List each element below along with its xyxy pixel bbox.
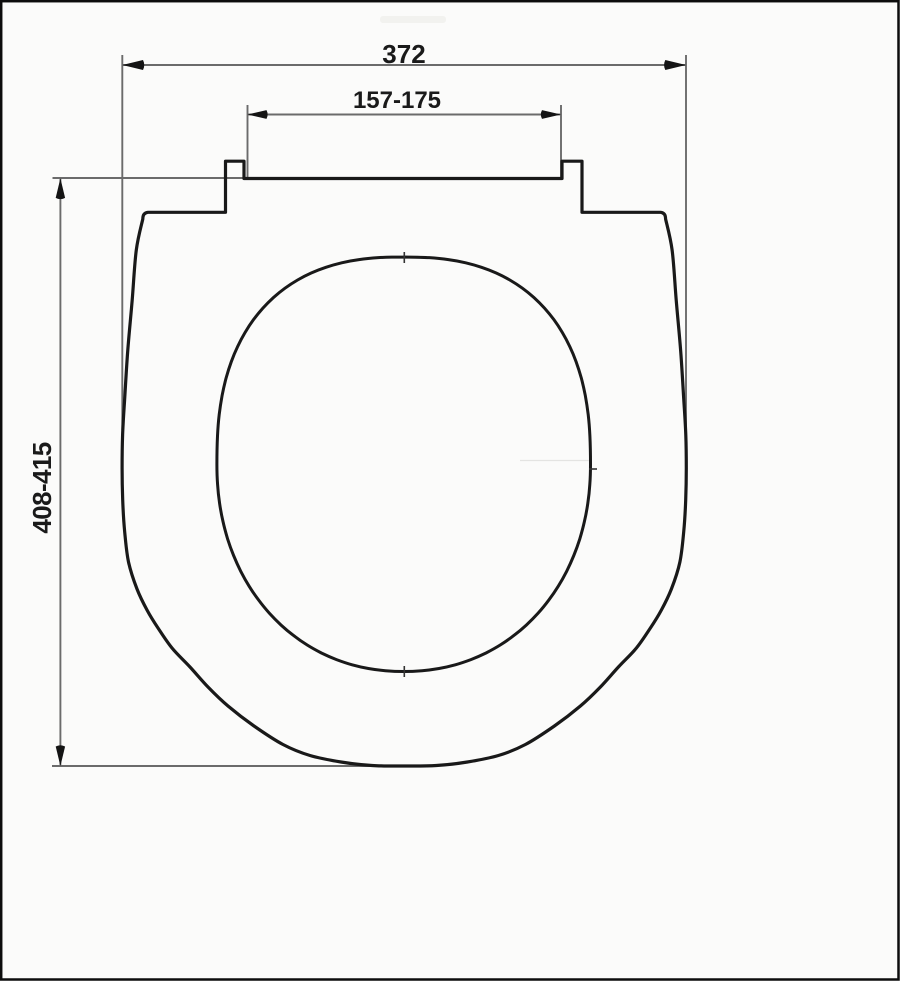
svg-text:408-415: 408-415 bbox=[27, 442, 57, 533]
svg-text:372: 372 bbox=[382, 39, 425, 69]
svg-text:157-175: 157-175 bbox=[353, 87, 441, 114]
